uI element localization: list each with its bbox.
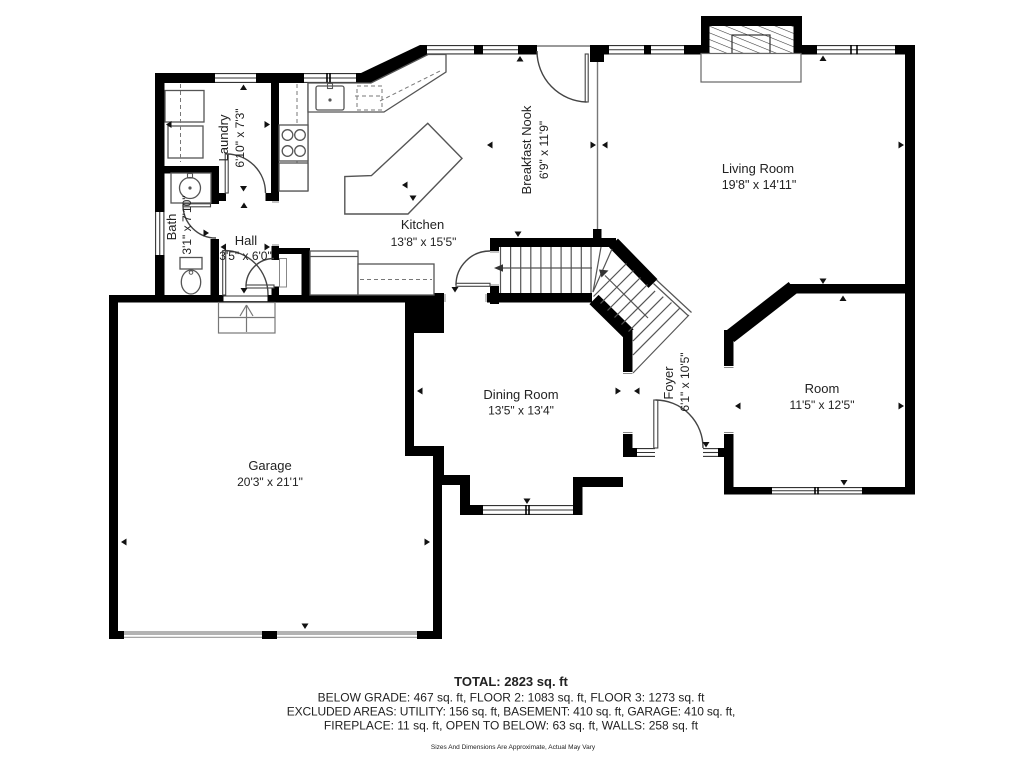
svg-text:Room: Room: [805, 381, 840, 396]
svg-text:Foyer: Foyer: [661, 366, 676, 400]
svg-text:Breakfast Nook: Breakfast Nook: [519, 105, 534, 194]
svg-text:Sizes And Dimensions Are Appro: Sizes And Dimensions Are Approximate, Ac…: [431, 744, 596, 751]
svg-text:6'9" x 11'9": 6'9" x 11'9": [537, 121, 551, 179]
svg-text:13'8" x 15'5": 13'8" x 15'5": [391, 235, 457, 249]
svg-text:6'1" x 10'5": 6'1" x 10'5": [678, 352, 692, 411]
svg-text:Hall: Hall: [235, 233, 258, 248]
svg-text:13'5" x 13'4": 13'5" x 13'4": [488, 404, 554, 418]
svg-text:Dining Room: Dining Room: [483, 387, 558, 402]
svg-text:19'8" x 14'11": 19'8" x 14'11": [722, 178, 797, 192]
svg-text:6'10" x 7'3": 6'10" x 7'3": [233, 108, 247, 167]
svg-text:3'5" x 6'0": 3'5" x 6'0": [219, 249, 271, 263]
svg-text:11'5" x 12'5": 11'5" x 12'5": [790, 398, 855, 412]
svg-text:Garage: Garage: [248, 458, 291, 473]
svg-text:Bath: Bath: [164, 214, 179, 241]
svg-text:Living Room: Living Room: [722, 161, 794, 176]
svg-text:20'3" x 21'1": 20'3" x 21'1": [237, 475, 303, 489]
svg-text:FIREPLACE: 11 sq. ft, OPEN TO: FIREPLACE: 11 sq. ft, OPEN TO BELOW: 63 …: [324, 719, 699, 733]
svg-text:3'1" x 7'10": 3'1" x 7'10": [180, 195, 194, 254]
svg-text:BELOW GRADE: 467 sq. ft, FLOOR: BELOW GRADE: 467 sq. ft, FLOOR 2: 1083 s…: [318, 691, 705, 705]
svg-text:Laundry: Laundry: [216, 114, 231, 161]
svg-text:Kitchen: Kitchen: [401, 217, 444, 232]
svg-text:EXCLUDED AREAS: UTILITY: 156 s: EXCLUDED AREAS: UTILITY: 156 sq. ft, BAS…: [287, 705, 735, 719]
svg-text:TOTAL: 2823 sq. ft: TOTAL: 2823 sq. ft: [454, 674, 568, 689]
